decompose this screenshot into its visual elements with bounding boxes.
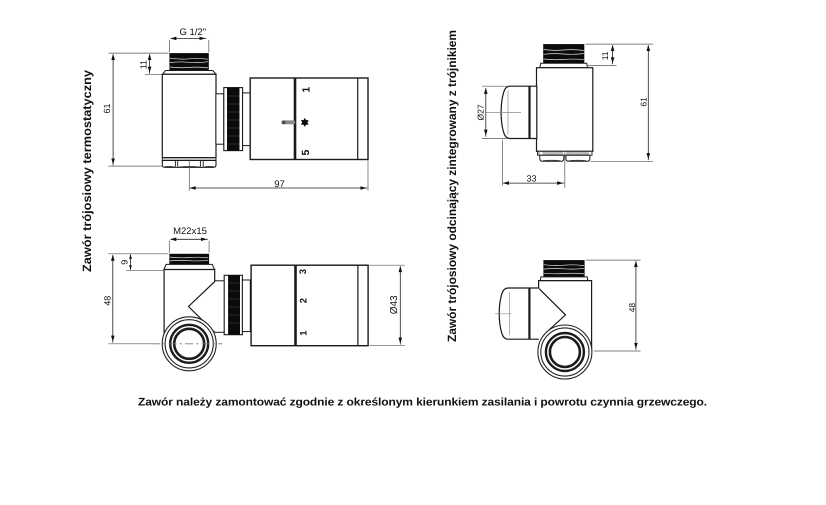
svg-text:Zawór należy zamontować zgodni: Zawór należy zamontować zgodnie z określ… <box>138 397 707 409</box>
svg-text:2: 2 <box>298 298 309 303</box>
svg-text:48: 48 <box>102 296 112 306</box>
svg-text:1: 1 <box>301 87 313 93</box>
svg-text:33: 33 <box>526 173 536 183</box>
svg-text:M22x15: M22x15 <box>173 226 207 237</box>
svg-text:Ø27: Ø27 <box>476 104 486 120</box>
svg-text:Ø43: Ø43 <box>389 295 400 314</box>
svg-text:G 1/2": G 1/2" <box>179 27 206 38</box>
svg-text:3: 3 <box>298 269 309 274</box>
svg-text:61: 61 <box>102 103 112 113</box>
svg-text:5: 5 <box>300 150 312 156</box>
svg-text:1: 1 <box>298 330 309 336</box>
svg-text:Zawór trójosiowy odcinający zi: Zawór trójosiowy odcinający zintegrowany… <box>445 30 459 342</box>
svg-text:11: 11 <box>600 51 610 60</box>
svg-text:9: 9 <box>119 260 129 265</box>
svg-text:61: 61 <box>639 97 649 107</box>
svg-text:11: 11 <box>138 60 148 69</box>
svg-text:Zawór trójosiowy termostatyczn: Zawór trójosiowy termostatyczny <box>80 70 94 272</box>
